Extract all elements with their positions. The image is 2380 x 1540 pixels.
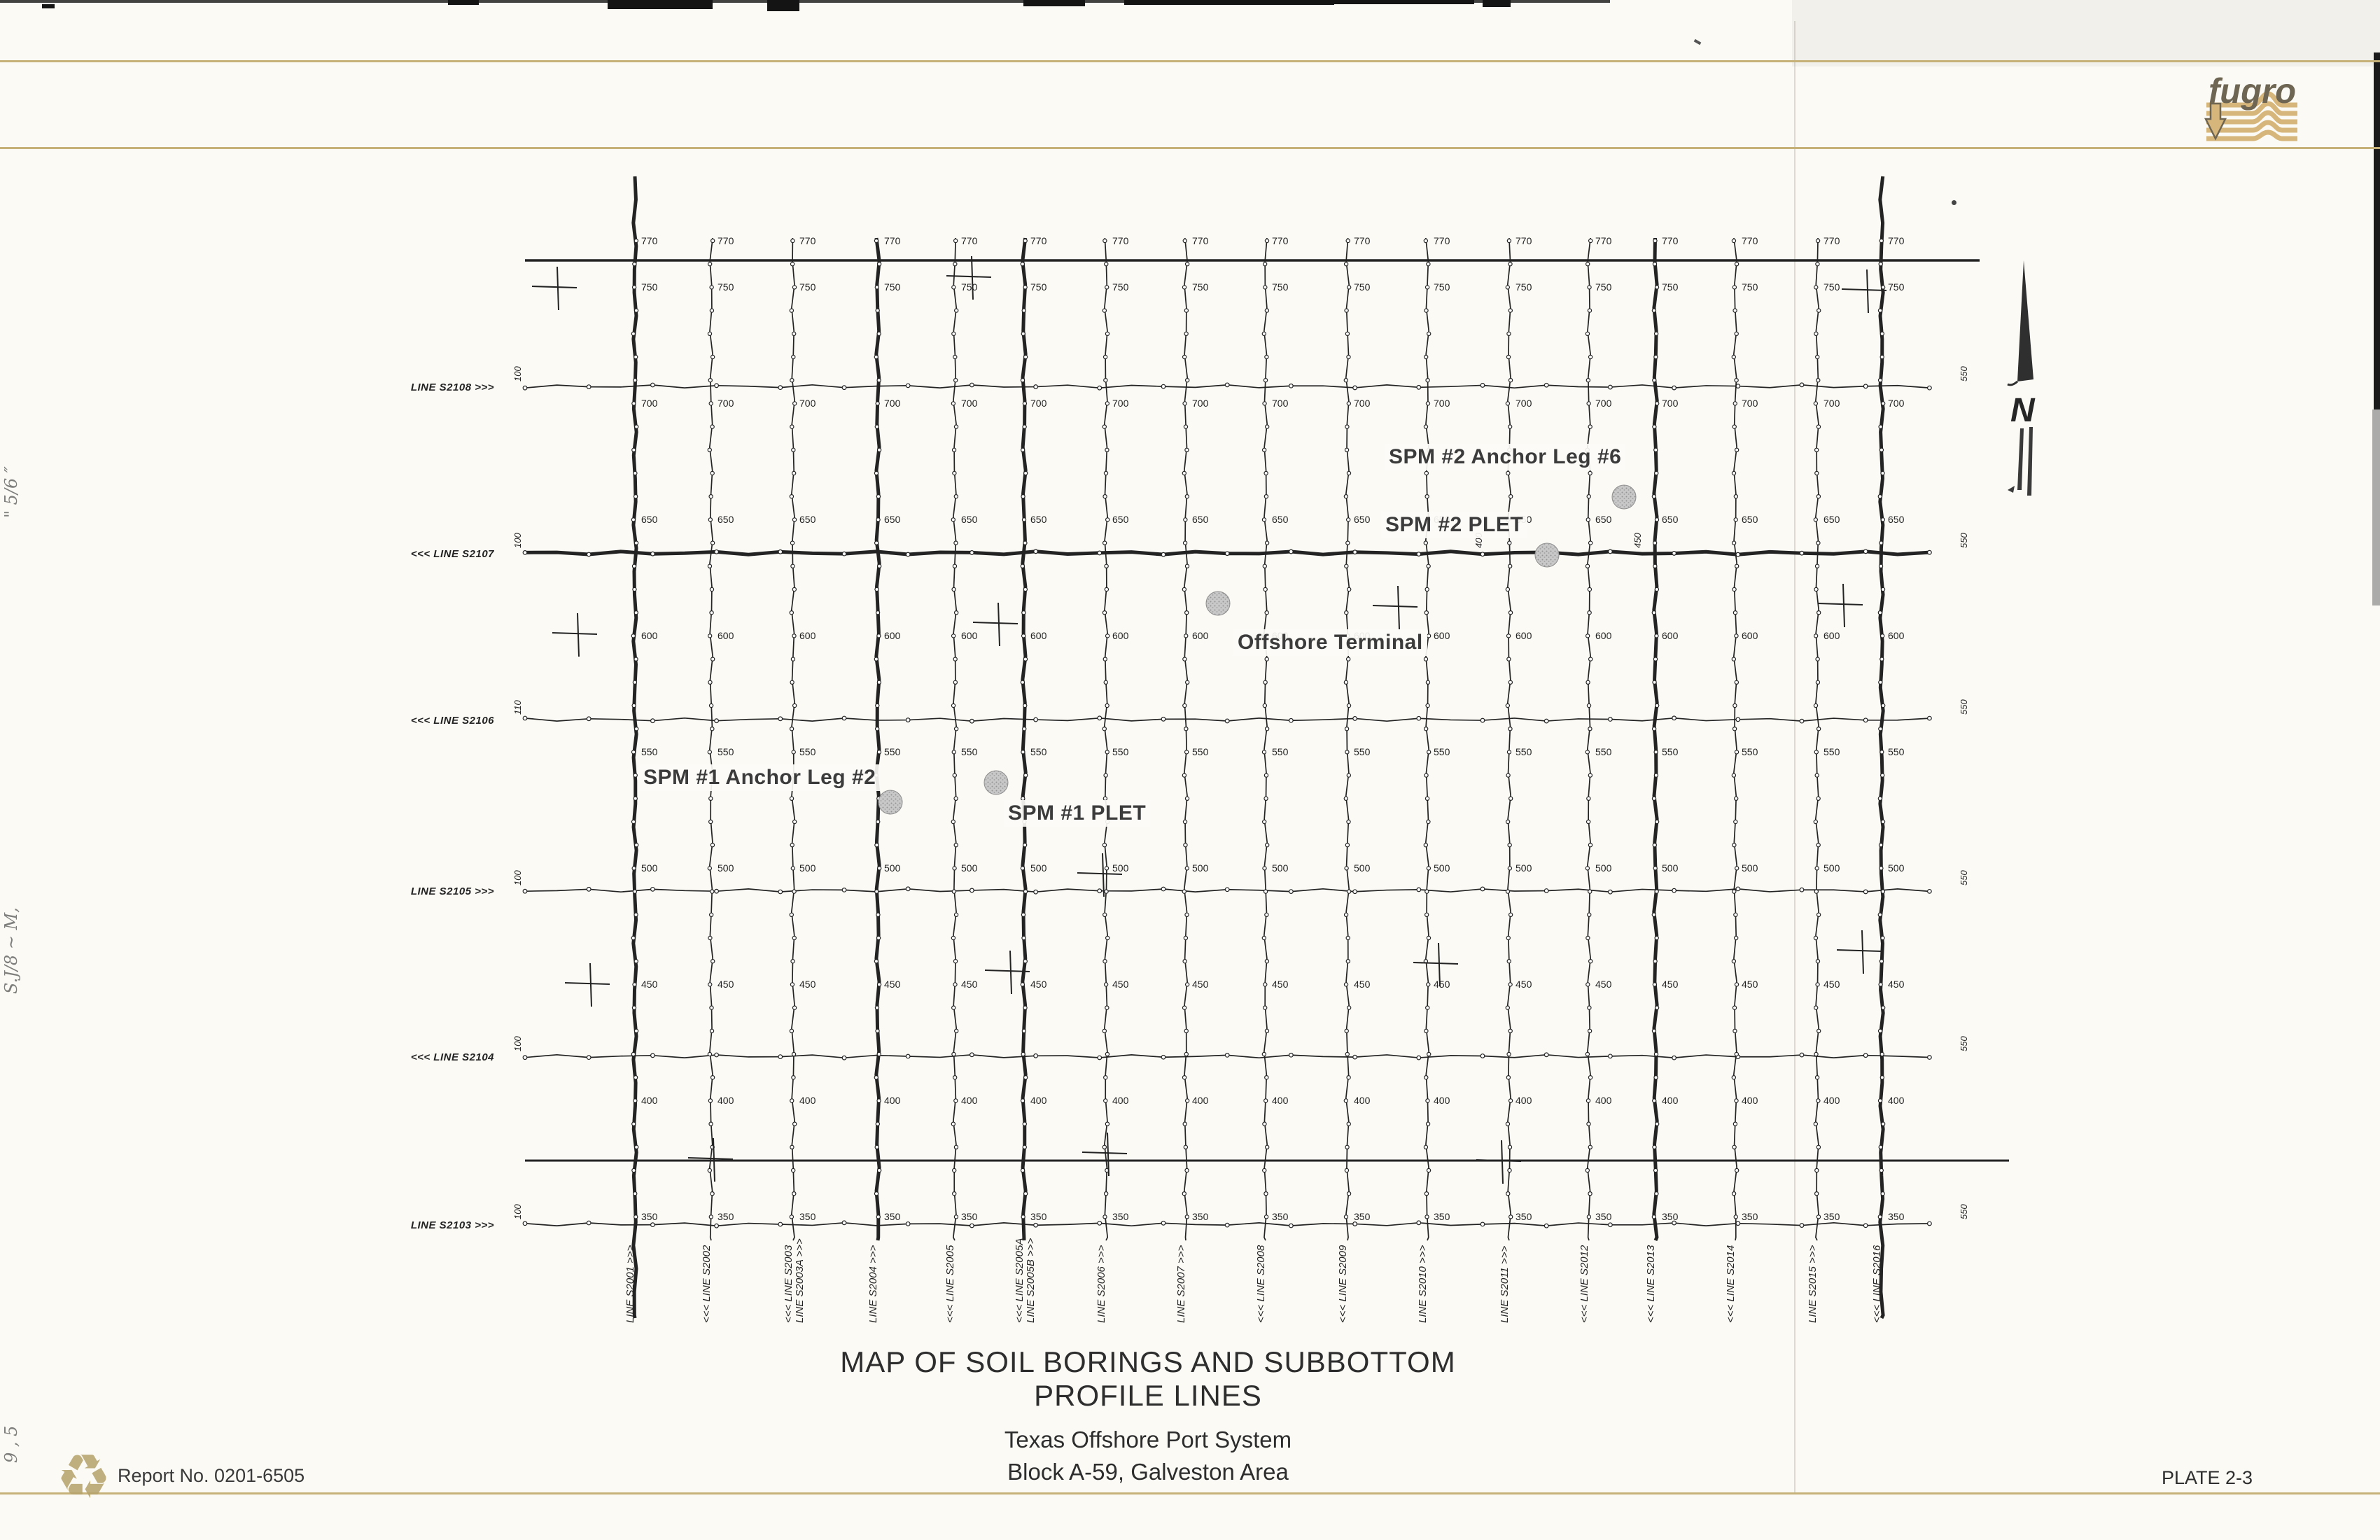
svg-text:650: 650 — [1030, 514, 1047, 525]
svg-text:550: 550 — [1354, 746, 1371, 757]
svg-text:500: 500 — [717, 862, 734, 874]
svg-text:350: 350 — [884, 1211, 901, 1222]
svg-text:LINE S2001 >>>: LINE S2001 >>> — [624, 1245, 636, 1323]
svg-text:750: 750 — [1515, 281, 1532, 293]
svg-text:600: 600 — [1595, 630, 1612, 641]
svg-text:770: 770 — [1662, 235, 1679, 246]
svg-text:750: 750 — [1888, 281, 1905, 293]
svg-text:650: 650 — [961, 514, 978, 525]
svg-text:500: 500 — [1272, 862, 1289, 874]
svg-text:600: 600 — [1112, 630, 1129, 641]
svg-text:110: 110 — [512, 700, 523, 715]
svg-text:550: 550 — [1959, 1036, 1969, 1051]
svg-text:550: 550 — [884, 746, 901, 757]
offshore-terminal-label: Offshore Terminal — [1233, 629, 1427, 656]
spm2-anchor-leg6-label: SPM #2 Anchor Leg #6 — [1385, 444, 1625, 470]
svg-text:600: 600 — [1662, 630, 1679, 641]
svg-text:<<< LINE S2002: <<< LINE S2002 — [701, 1245, 713, 1323]
svg-text:770: 770 — [961, 235, 978, 246]
svg-text:770: 770 — [1434, 235, 1450, 246]
svg-text:500: 500 — [799, 862, 816, 874]
svg-text:LINE S2004 >>>: LINE S2004 >>> — [867, 1245, 879, 1323]
svg-text:<<< LINE S2005A: <<< LINE S2005A — [1014, 1238, 1025, 1323]
svg-text:550: 550 — [1030, 746, 1047, 757]
svg-text:400: 400 — [1354, 1095, 1371, 1106]
svg-text:400: 400 — [1272, 1095, 1289, 1106]
svg-text:550: 550 — [1959, 366, 1969, 381]
svg-text:450: 450 — [1272, 979, 1289, 990]
svg-text:700: 700 — [1595, 398, 1612, 409]
svg-text:350: 350 — [1354, 1211, 1371, 1222]
north-label: N — [2010, 392, 2036, 429]
svg-text:500: 500 — [1742, 862, 1758, 874]
svg-text:<<< LINE S2106: <<< LINE S2106 — [411, 715, 494, 727]
svg-text:650: 650 — [1112, 514, 1129, 525]
svg-text:600: 600 — [717, 630, 734, 641]
svg-text:350: 350 — [1662, 1211, 1679, 1222]
svg-text:LINE S2010 >>>: LINE S2010 >>> — [1417, 1245, 1429, 1323]
spm2-anchor-leg6-boring — [1612, 485, 1636, 509]
svg-text:500: 500 — [1030, 862, 1047, 874]
svg-text:600: 600 — [799, 630, 816, 641]
svg-text:650: 650 — [717, 514, 734, 525]
cross-mark — [1837, 930, 1882, 974]
svg-text:550: 550 — [1272, 746, 1289, 757]
spm1-anchor-leg2-boring — [878, 790, 902, 814]
svg-text:450: 450 — [1888, 979, 1905, 990]
svg-text:<<< LINE S2008: <<< LINE S2008 — [1255, 1245, 1267, 1323]
spm1-plet-boring — [984, 771, 1008, 794]
offshore-terminal-boring — [1206, 591, 1230, 615]
svg-text:550: 550 — [717, 746, 734, 757]
svg-text:350: 350 — [1595, 1211, 1612, 1222]
svg-text:100: 100 — [512, 366, 523, 381]
svg-text:700: 700 — [1354, 398, 1371, 409]
svg-text:450: 450 — [884, 979, 901, 990]
svg-text:700: 700 — [1742, 398, 1758, 409]
svg-text:770: 770 — [1030, 235, 1047, 246]
survey-map: LINE S2108 >>>100550<<< LINE S2107100550… — [0, 0, 2380, 1540]
svg-text:400: 400 — [1823, 1095, 1840, 1106]
svg-text:750: 750 — [1192, 281, 1209, 293]
svg-text:400: 400 — [1192, 1095, 1209, 1106]
svg-text:400: 400 — [1888, 1095, 1905, 1106]
svg-text:700: 700 — [799, 398, 816, 409]
svg-text:100: 100 — [512, 1036, 523, 1051]
svg-text:700: 700 — [717, 398, 734, 409]
svg-text:600: 600 — [1742, 630, 1758, 641]
svg-text:450: 450 — [1662, 979, 1679, 990]
svg-text:650: 650 — [1192, 514, 1209, 525]
cross-mark — [565, 963, 610, 1007]
svg-text:<<< LINE S2012: <<< LINE S2012 — [1578, 1245, 1590, 1323]
svg-text:650: 650 — [1742, 514, 1758, 525]
svg-text:770: 770 — [1595, 235, 1612, 246]
svg-text:350: 350 — [799, 1211, 816, 1222]
svg-text:550: 550 — [1662, 746, 1679, 757]
svg-text:450: 450 — [1030, 979, 1047, 990]
svg-text:500: 500 — [1112, 862, 1129, 874]
svg-text:600: 600 — [884, 630, 901, 641]
svg-text:<<< LINE S2016: <<< LINE S2016 — [1871, 1245, 1883, 1323]
svg-text:650: 650 — [799, 514, 816, 525]
svg-text:770: 770 — [1272, 235, 1289, 246]
survey-grid: LINE S2108 >>>100550<<< LINE S2107100550… — [411, 176, 2009, 1323]
svg-text:450: 450 — [1354, 979, 1371, 990]
svg-text:700: 700 — [884, 398, 901, 409]
svg-text:350: 350 — [1112, 1211, 1129, 1222]
svg-text:450: 450 — [1434, 979, 1450, 990]
cross-mark — [946, 256, 991, 300]
svg-text:500: 500 — [1434, 862, 1450, 874]
svg-text:750: 750 — [1662, 281, 1679, 293]
svg-text:770: 770 — [1823, 235, 1840, 246]
cross-mark — [532, 267, 577, 310]
svg-text:750: 750 — [884, 281, 901, 293]
svg-text:450: 450 — [1632, 533, 1643, 548]
svg-text:550: 550 — [1595, 746, 1612, 757]
svg-text:600: 600 — [1823, 630, 1840, 641]
svg-text:650: 650 — [1272, 514, 1289, 525]
svg-text:450: 450 — [1595, 979, 1612, 990]
svg-text:350: 350 — [1742, 1211, 1758, 1222]
svg-text:350: 350 — [1823, 1211, 1840, 1222]
cross-mark — [1818, 584, 1863, 627]
svg-text:400: 400 — [1434, 1095, 1450, 1106]
survey-line-line-s2001: 770750700650600550500450400350LINE S2001… — [624, 176, 658, 1323]
svg-text:550: 550 — [1959, 1204, 1969, 1219]
svg-text:500: 500 — [1515, 862, 1532, 874]
svg-text:LINE S2108 >>>: LINE S2108 >>> — [411, 381, 494, 393]
svg-text:750: 750 — [1823, 281, 1840, 293]
spm1-anchor-leg2-label: SPM #1 Anchor Leg #2 — [639, 764, 880, 791]
svg-text:400: 400 — [1515, 1095, 1532, 1106]
svg-text:450: 450 — [641, 979, 658, 990]
svg-text:400: 400 — [1595, 1095, 1612, 1106]
svg-text:500: 500 — [641, 862, 658, 874]
svg-text:400: 400 — [1662, 1095, 1679, 1106]
svg-text:550: 550 — [1959, 699, 1969, 715]
svg-text:550: 550 — [1959, 533, 1969, 548]
spm2-plet-label: SPM #2 PLET — [1381, 512, 1527, 538]
svg-text:400: 400 — [799, 1095, 816, 1106]
svg-text:500: 500 — [1823, 862, 1840, 874]
svg-text:700: 700 — [1434, 398, 1450, 409]
svg-text:700: 700 — [1030, 398, 1047, 409]
svg-text:<<< LINE S2003: <<< LINE S2003 — [783, 1245, 794, 1323]
north-arrow-icon: N — [2008, 260, 2036, 496]
svg-text:750: 750 — [641, 281, 658, 293]
svg-text:600: 600 — [961, 630, 978, 641]
svg-text:700: 700 — [1272, 398, 1289, 409]
svg-text:450: 450 — [1823, 979, 1840, 990]
svg-text:500: 500 — [1354, 862, 1371, 874]
svg-text:770: 770 — [799, 235, 816, 246]
svg-text:700: 700 — [1515, 398, 1532, 409]
cross-mark — [1373, 586, 1417, 629]
svg-text:770: 770 — [1112, 235, 1129, 246]
svg-text:600: 600 — [1515, 630, 1532, 641]
cross-mark — [1476, 1140, 1521, 1184]
svg-text:550: 550 — [1192, 746, 1209, 757]
svg-text:400: 400 — [641, 1095, 658, 1106]
svg-text:700: 700 — [641, 398, 658, 409]
svg-text:350: 350 — [1434, 1211, 1450, 1222]
svg-text:770: 770 — [884, 235, 901, 246]
svg-text:<<< LINE S2104: <<< LINE S2104 — [411, 1051, 494, 1063]
svg-text:600: 600 — [1888, 630, 1905, 641]
svg-text:650: 650 — [1823, 514, 1840, 525]
svg-text:350: 350 — [1888, 1211, 1905, 1222]
svg-text:770: 770 — [1515, 235, 1532, 246]
svg-text:100: 100 — [512, 870, 523, 885]
svg-text:600: 600 — [1434, 630, 1450, 641]
svg-text:<<< LINE S2005: <<< LINE S2005 — [944, 1245, 956, 1323]
svg-text:350: 350 — [1272, 1211, 1289, 1222]
svg-text:450: 450 — [1112, 979, 1129, 990]
svg-text:<<< LINE S2107: <<< LINE S2107 — [411, 548, 494, 560]
svg-text:700: 700 — [961, 398, 978, 409]
svg-text:650: 650 — [1354, 514, 1371, 525]
svg-text:400: 400 — [961, 1095, 978, 1106]
svg-text:650: 650 — [1662, 514, 1679, 525]
svg-text:700: 700 — [1888, 398, 1905, 409]
svg-text:550: 550 — [1742, 746, 1758, 757]
svg-text:770: 770 — [1192, 235, 1209, 246]
svg-text:400: 400 — [884, 1095, 901, 1106]
svg-text:750: 750 — [1595, 281, 1612, 293]
svg-text:600: 600 — [1030, 630, 1047, 641]
scanned-map-page: fugro LINE S2108 >>>100550<<< LINE S2107… — [0, 0, 2380, 1540]
svg-text:770: 770 — [717, 235, 734, 246]
svg-text:750: 750 — [1742, 281, 1758, 293]
svg-text:750: 750 — [1112, 281, 1129, 293]
svg-text:LINE S2006 >>>: LINE S2006 >>> — [1095, 1245, 1107, 1323]
svg-text:450: 450 — [799, 979, 816, 990]
svg-text:550: 550 — [641, 746, 658, 757]
svg-text:LINE S2015 >>>: LINE S2015 >>> — [1807, 1245, 1819, 1323]
svg-text:500: 500 — [1192, 862, 1209, 874]
spm2-plet-boring — [1535, 543, 1559, 567]
svg-text:770: 770 — [1354, 235, 1371, 246]
svg-text:100: 100 — [512, 533, 523, 548]
svg-text:750: 750 — [1354, 281, 1371, 293]
svg-text:<<< LINE S2014: <<< LINE S2014 — [1725, 1245, 1737, 1323]
svg-text:550: 550 — [799, 746, 816, 757]
svg-text:550: 550 — [1112, 746, 1129, 757]
svg-text:550: 550 — [1434, 746, 1450, 757]
svg-text:500: 500 — [1595, 862, 1612, 874]
svg-text:LINE S2011 >>>: LINE S2011 >>> — [1499, 1246, 1511, 1323]
svg-text:500: 500 — [961, 862, 978, 874]
svg-text:LINE S2103 >>>: LINE S2103 >>> — [411, 1219, 494, 1231]
svg-text:750: 750 — [1030, 281, 1047, 293]
svg-text:450: 450 — [717, 979, 734, 990]
svg-text:500: 500 — [1888, 862, 1905, 874]
svg-text:350: 350 — [961, 1211, 978, 1222]
svg-text:650: 650 — [641, 514, 658, 525]
svg-text:500: 500 — [1662, 862, 1679, 874]
svg-text:LINE S2007 >>>: LINE S2007 >>> — [1175, 1245, 1187, 1323]
svg-text:400: 400 — [1742, 1095, 1758, 1106]
svg-text:<<< LINE S2009: <<< LINE S2009 — [1337, 1245, 1349, 1323]
svg-text:400: 400 — [717, 1095, 734, 1106]
svg-text:100: 100 — [512, 1204, 523, 1219]
svg-text:650: 650 — [884, 514, 901, 525]
svg-text:350: 350 — [1030, 1211, 1047, 1222]
svg-text:770: 770 — [1742, 235, 1758, 246]
cross-mark — [552, 613, 597, 657]
svg-text:350: 350 — [1192, 1211, 1209, 1222]
svg-text:600: 600 — [641, 630, 658, 641]
svg-text:350: 350 — [641, 1211, 658, 1222]
svg-text:450: 450 — [1192, 979, 1209, 990]
svg-text:700: 700 — [1192, 398, 1209, 409]
svg-text:700: 700 — [1112, 398, 1129, 409]
svg-text:770: 770 — [1888, 235, 1905, 246]
svg-text:<<< LINE S2013: <<< LINE S2013 — [1645, 1245, 1657, 1323]
svg-text:600: 600 — [1192, 630, 1209, 641]
svg-text:LINE S2005B >>>: LINE S2005B >>> — [1025, 1238, 1037, 1323]
svg-text:500: 500 — [884, 862, 901, 874]
svg-text:450: 450 — [1742, 979, 1758, 990]
svg-text:750: 750 — [717, 281, 734, 293]
svg-text:770: 770 — [641, 235, 658, 246]
svg-text:550: 550 — [1888, 746, 1905, 757]
svg-text:LINE S2003A >>>: LINE S2003A >>> — [794, 1238, 806, 1323]
svg-text:450: 450 — [961, 979, 978, 990]
svg-text:550: 550 — [961, 746, 978, 757]
svg-text:750: 750 — [1272, 281, 1289, 293]
svg-text:700: 700 — [1662, 398, 1679, 409]
svg-text:650: 650 — [1888, 514, 1905, 525]
svg-text:550: 550 — [1515, 746, 1532, 757]
svg-text:750: 750 — [961, 281, 978, 293]
svg-text:350: 350 — [1515, 1211, 1532, 1222]
svg-text:LINE S2105 >>>: LINE S2105 >>> — [411, 885, 494, 897]
cross-mark — [973, 603, 1018, 646]
svg-text:650: 650 — [1595, 514, 1612, 525]
svg-text:400: 400 — [1030, 1095, 1047, 1106]
svg-text:450: 450 — [1515, 979, 1532, 990]
svg-text:750: 750 — [799, 281, 816, 293]
svg-text:750: 750 — [1434, 281, 1450, 293]
svg-text:350: 350 — [717, 1211, 734, 1222]
svg-text:700: 700 — [1823, 398, 1840, 409]
svg-text:550: 550 — [1823, 746, 1840, 757]
survey-line-line-s2016: 770750700650600550500450400350<<< LINE S… — [1871, 176, 1905, 1323]
svg-text:400: 400 — [1112, 1095, 1129, 1106]
spm1-plet-label: SPM #1 PLET — [1004, 800, 1150, 827]
svg-text:550: 550 — [1959, 870, 1969, 885]
